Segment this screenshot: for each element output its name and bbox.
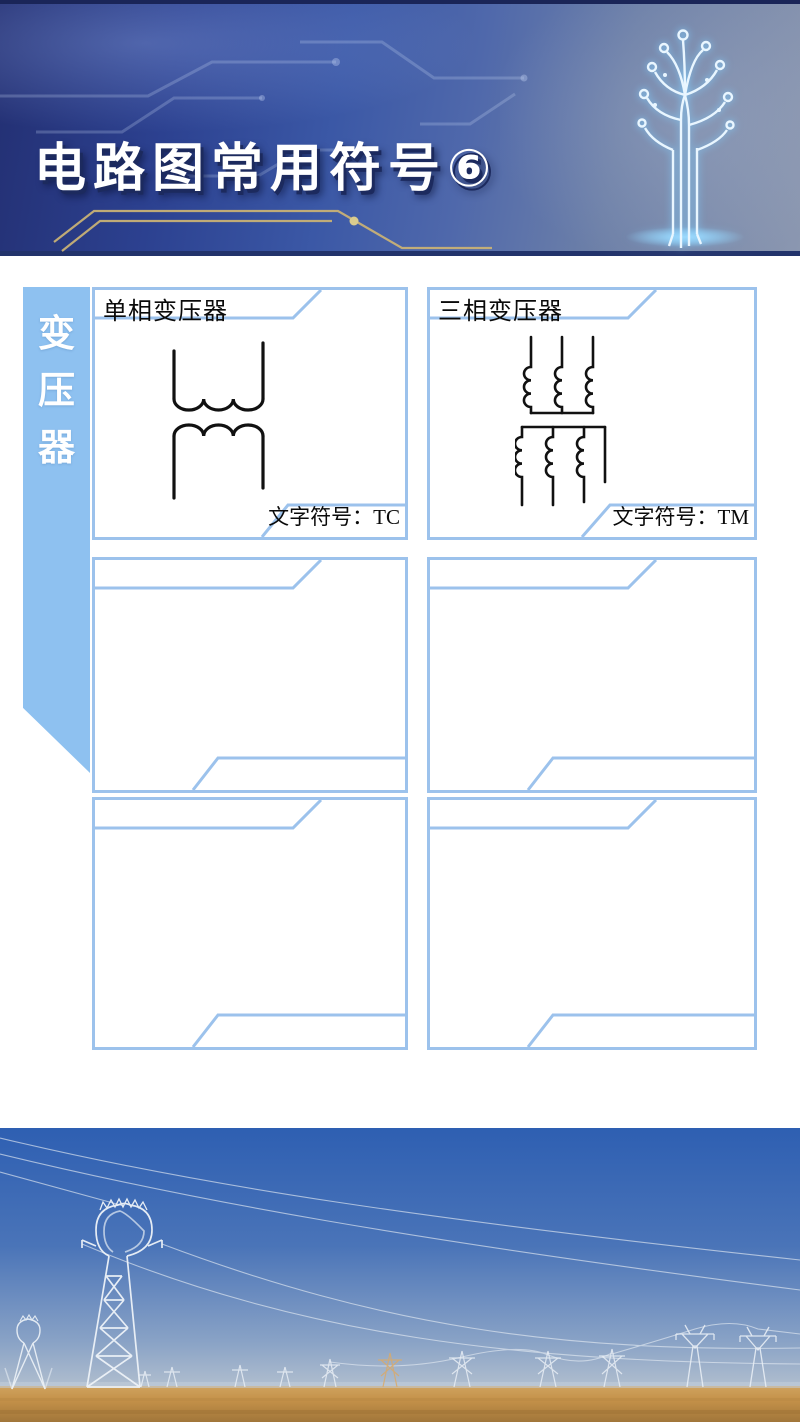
cell-three-phase-transformer: 三相变压器 文字符号：TM [427, 287, 757, 540]
cell-empty [92, 797, 408, 1050]
trace-node-dot [350, 217, 359, 226]
cell-single-phase-transformer: 单相变压器 文字符号：TC [92, 287, 408, 540]
photo-illustration [0, 1128, 800, 1422]
cell-empty [92, 557, 408, 793]
category-sidebar: 变 压 器 [23, 287, 90, 773]
sidebar-char: 压 [38, 372, 75, 409]
sidebar-char: 器 [38, 429, 75, 466]
poster-page: 电路图常用符号⑥ 变 压 器 单相变压器 [0, 0, 800, 1422]
tree-branches [639, 31, 734, 249]
cell-empty [427, 797, 757, 1050]
cell-empty [427, 557, 757, 793]
cell-title: 单相变压器 [103, 291, 228, 326]
cell-corner-tabs [95, 800, 405, 1047]
transmission-towers-photo [0, 1128, 800, 1422]
cell-footer-label: 文字符号：TC [268, 501, 400, 531]
tree-base-glow [625, 227, 745, 247]
three-phase-transformer-symbol [515, 330, 615, 510]
single-phase-transformer-symbol [166, 340, 271, 500]
cell-title: 三相变压器 [438, 291, 563, 326]
cell-corner-tabs [430, 800, 754, 1047]
gold-circuit-trace [40, 192, 510, 254]
circuit-tree-graphic [595, 10, 775, 254]
cell-corner-tabs [95, 560, 405, 790]
header-banner: 电路图常用符号⑥ [0, 0, 800, 256]
cell-footer-label: 文字符号：TM [613, 501, 750, 531]
grassland-ground [0, 1386, 800, 1422]
cell-corner-tabs [430, 560, 754, 790]
sidebar-char: 变 [38, 315, 75, 352]
page-title: 电路图常用符号⑥ [34, 141, 498, 198]
